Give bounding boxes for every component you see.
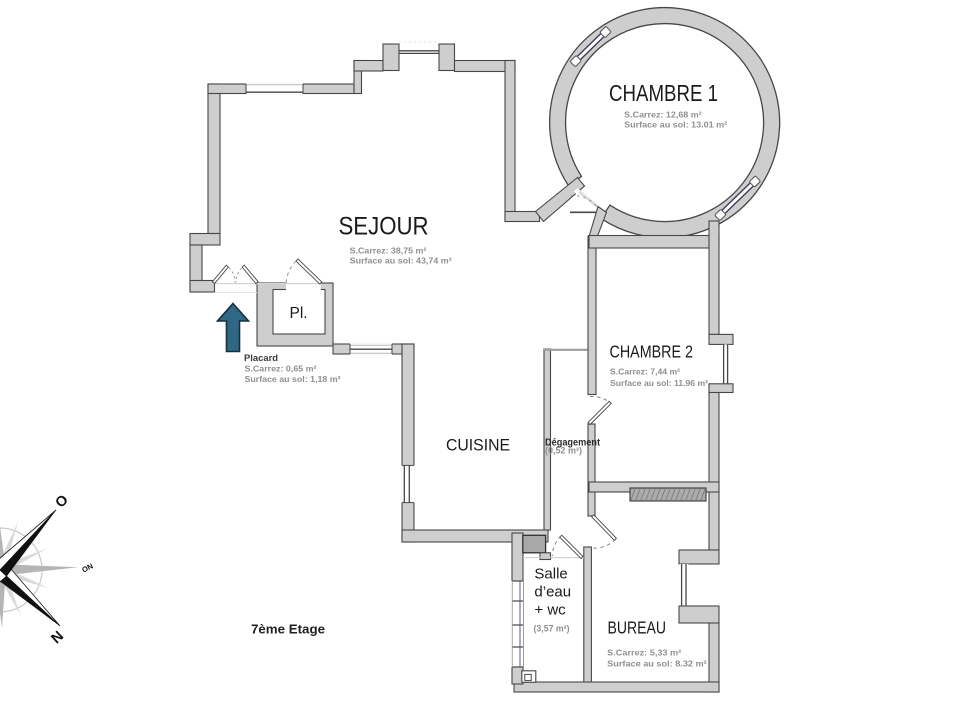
svg-text:S.Carrez: 7,44 m²: S.Carrez: 7,44 m² — [610, 367, 680, 377]
svg-text:d’eau: d’eau — [534, 583, 571, 600]
svg-text:CHAMBRE 2: CHAMBRE 2 — [610, 342, 694, 362]
svg-text:(0,52 m²): (0,52 m²) — [545, 446, 582, 456]
svg-text:CHAMBRE 1: CHAMBRE 1 — [609, 80, 718, 106]
svg-text:O: O — [53, 492, 72, 511]
svg-text:S.Carrez: 0,65 m²: S.Carrez: 0,65 m² — [245, 364, 317, 374]
svg-text:+ wc: + wc — [534, 601, 566, 618]
svg-text:Surface au sol: 13.01 m²: Surface au sol: 13.01 m² — [624, 120, 727, 130]
svg-text:Salle: Salle — [534, 565, 567, 582]
svg-text:Surface au sol: 8.32 m²: Surface au sol: 8.32 m² — [607, 659, 707, 669]
svg-text:N: N — [48, 628, 67, 647]
svg-text:Surface au sol: 43,74 m²: Surface au sol: 43,74 m² — [350, 256, 452, 266]
svg-text:Surface au sol: 1,18 m²: Surface au sol: 1,18 m² — [245, 374, 341, 384]
svg-text:Placard: Placard — [244, 353, 278, 363]
svg-text:ON: ON — [80, 561, 94, 574]
svg-text:Surface au sol: 11.96 m²: Surface au sol: 11.96 m² — [610, 378, 708, 388]
svg-text:S.Carrez: 5,33 m²: S.Carrez: 5,33 m² — [607, 648, 681, 658]
svg-text:7ème Etage: 7ème Etage — [251, 623, 325, 637]
svg-text:SEJOUR: SEJOUR — [339, 213, 429, 241]
svg-text:(3,57 m²): (3,57 m²) — [534, 624, 570, 634]
svg-text:S.Carrez: 12,68 m²: S.Carrez: 12,68 m² — [624, 110, 702, 120]
svg-text:CUISINE: CUISINE — [446, 436, 510, 454]
svg-text:S.Carrez: 38,75 m²: S.Carrez: 38,75 m² — [350, 246, 427, 256]
svg-text:Pl.: Pl. — [290, 305, 308, 322]
svg-text:BUREAU: BUREAU — [608, 618, 667, 638]
